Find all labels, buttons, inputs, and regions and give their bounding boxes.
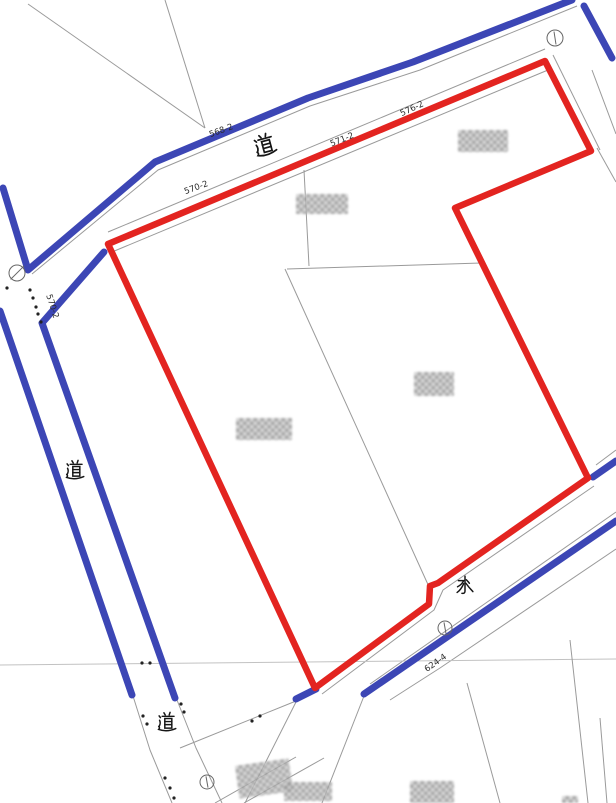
- blurred-parcel-number-bottom-3: [410, 781, 454, 803]
- map-drawing: 568-2571-2576-2570-2570-2624-4: [0, 0, 616, 803]
- boundary-dot: [31, 296, 34, 299]
- boundary-dot: [148, 661, 151, 664]
- blurred-parcel-number-center-top: [296, 194, 348, 214]
- boundary-dot: [39, 320, 42, 323]
- blurred-parcel-number-west: [236, 418, 292, 440]
- parcel-line-10: [285, 269, 430, 589]
- blurred-parcel-number-east: [414, 372, 454, 396]
- boundary-dot: [28, 288, 31, 291]
- parcel-line-5: [553, 55, 600, 150]
- cadastral-map-canvas[interactable]: 568-2571-2576-2570-2570-2624-4: [0, 0, 616, 803]
- parcel-line-21: [177, 700, 222, 803]
- boundary-dot: [182, 710, 185, 713]
- parcel-line-22: [180, 701, 296, 748]
- lot-label-570-2: 570-2: [183, 179, 210, 197]
- boundary-dot: [172, 796, 175, 799]
- boundary-dot: [140, 661, 143, 664]
- road-kanji-top: [253, 132, 277, 157]
- boundary-dot: [145, 722, 148, 725]
- parcel-line-13: [390, 549, 616, 700]
- parcel-line-1: [165, 0, 205, 128]
- boundary-dot: [34, 305, 37, 308]
- survey-marker-left: [9, 265, 25, 281]
- boundary-dot: [36, 312, 39, 315]
- parcel-line-7: [592, 70, 616, 134]
- parcel-line-8: [304, 170, 309, 266]
- parcel-line-11: [322, 486, 594, 694]
- water-upper-right-highlight-line: [593, 461, 616, 477]
- boundary-dot: [250, 719, 253, 722]
- parcel-line-17: [467, 683, 500, 803]
- northeast-channel-highlight-line: [584, 6, 612, 58]
- blurred-parcel-number-edge: [562, 796, 578, 803]
- boundary-dot: [141, 714, 144, 717]
- parcel-line-6: [597, 148, 616, 182]
- parcel-line-20: [133, 696, 172, 803]
- parcel-line-19: [600, 718, 607, 803]
- boundary-dot: [258, 714, 261, 717]
- road-kanji-left: [67, 460, 84, 478]
- boundary-dot: [168, 786, 171, 789]
- parcel-line-4: [112, 70, 548, 252]
- survey-marker-top-right: [547, 30, 563, 46]
- left-road-west-edge-highlight-line: [0, 311, 132, 695]
- blurred-parcel-number-ne: [458, 130, 508, 152]
- blurred-parcel-number-bottom-2: [284, 782, 332, 801]
- boundary-dot: [179, 702, 182, 705]
- parcel-line-16: [0, 659, 616, 665]
- parcel-line-18: [570, 640, 588, 803]
- boundary-dot: [5, 286, 8, 289]
- parcel-line-0: [28, 4, 205, 128]
- road-kanji-bottom: [159, 712, 176, 730]
- boundary-dot: [163, 776, 166, 779]
- parcel-line-9: [287, 263, 481, 269]
